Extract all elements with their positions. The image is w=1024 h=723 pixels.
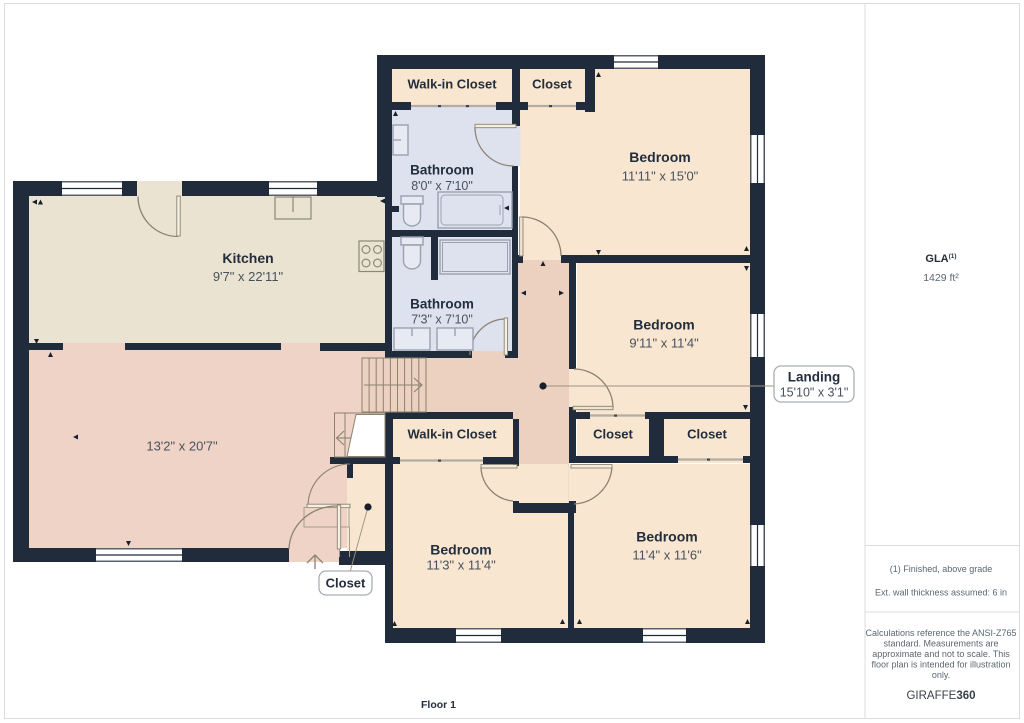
- svg-text:Bedroom: Bedroom: [430, 542, 491, 558]
- svg-text:9'11" x 11'4": 9'11" x 11'4": [629, 336, 699, 351]
- svg-text:Landing: Landing: [788, 370, 841, 385]
- svg-text:Closet: Closet: [532, 77, 572, 92]
- svg-text:11'3" x 11'4": 11'3" x 11'4": [426, 558, 496, 573]
- svg-text:Walk-in Closet: Walk-in Closet: [407, 427, 497, 442]
- svg-text:Closet: Closet: [593, 427, 633, 442]
- svg-text:15'10" x 3'1": 15'10" x 3'1": [780, 386, 849, 400]
- svg-text:Ext. wall thickness assumed: 6: Ext. wall thickness assumed: 6 in: [875, 588, 1007, 598]
- svg-text:11'11" x 15'0": 11'11" x 15'0": [622, 169, 699, 184]
- svg-text:Bedroom: Bedroom: [633, 317, 694, 333]
- svg-text:GIRAFFE360: GIRAFFE360: [906, 690, 975, 702]
- svg-text:standard. Measurements are: standard. Measurements are: [883, 639, 998, 649]
- svg-text:13'2" x 20'7": 13'2" x 20'7": [146, 439, 218, 454]
- svg-text:1429 ft²: 1429 ft²: [923, 272, 959, 284]
- svg-text:Kitchen: Kitchen: [222, 250, 273, 266]
- svg-text:Bedroom: Bedroom: [629, 149, 690, 165]
- svg-text:Bedroom: Bedroom: [636, 529, 697, 545]
- svg-text:9'7" x 22'11": 9'7" x 22'11": [213, 269, 284, 284]
- svg-text:Calculations reference the ANS: Calculations reference the ANSI-Z765: [865, 628, 1016, 638]
- svg-text:Closet: Closet: [326, 576, 366, 591]
- svg-text:(1) Finished, above grade: (1) Finished, above grade: [890, 564, 993, 574]
- svg-text:Bathroom: Bathroom: [410, 163, 474, 178]
- svg-text:Walk-in Closet: Walk-in Closet: [407, 77, 497, 92]
- svg-text:11'4" x 11'6": 11'4" x 11'6": [632, 548, 702, 563]
- svg-text:Bathroom: Bathroom: [410, 297, 474, 312]
- svg-text:floor plan is intended for ill: floor plan is intended for illustration: [871, 660, 1010, 670]
- svg-text:only.: only.: [932, 670, 950, 680]
- svg-text:7'3" x 7'10": 7'3" x 7'10": [411, 313, 473, 327]
- svg-text:8'0" x 7'10": 8'0" x 7'10": [411, 179, 473, 193]
- svg-text:approximate and not to scale.: approximate and not to scale. This: [872, 649, 1010, 659]
- svg-text:Floor 1: Floor 1: [421, 699, 456, 711]
- svg-text:Closet: Closet: [687, 427, 727, 442]
